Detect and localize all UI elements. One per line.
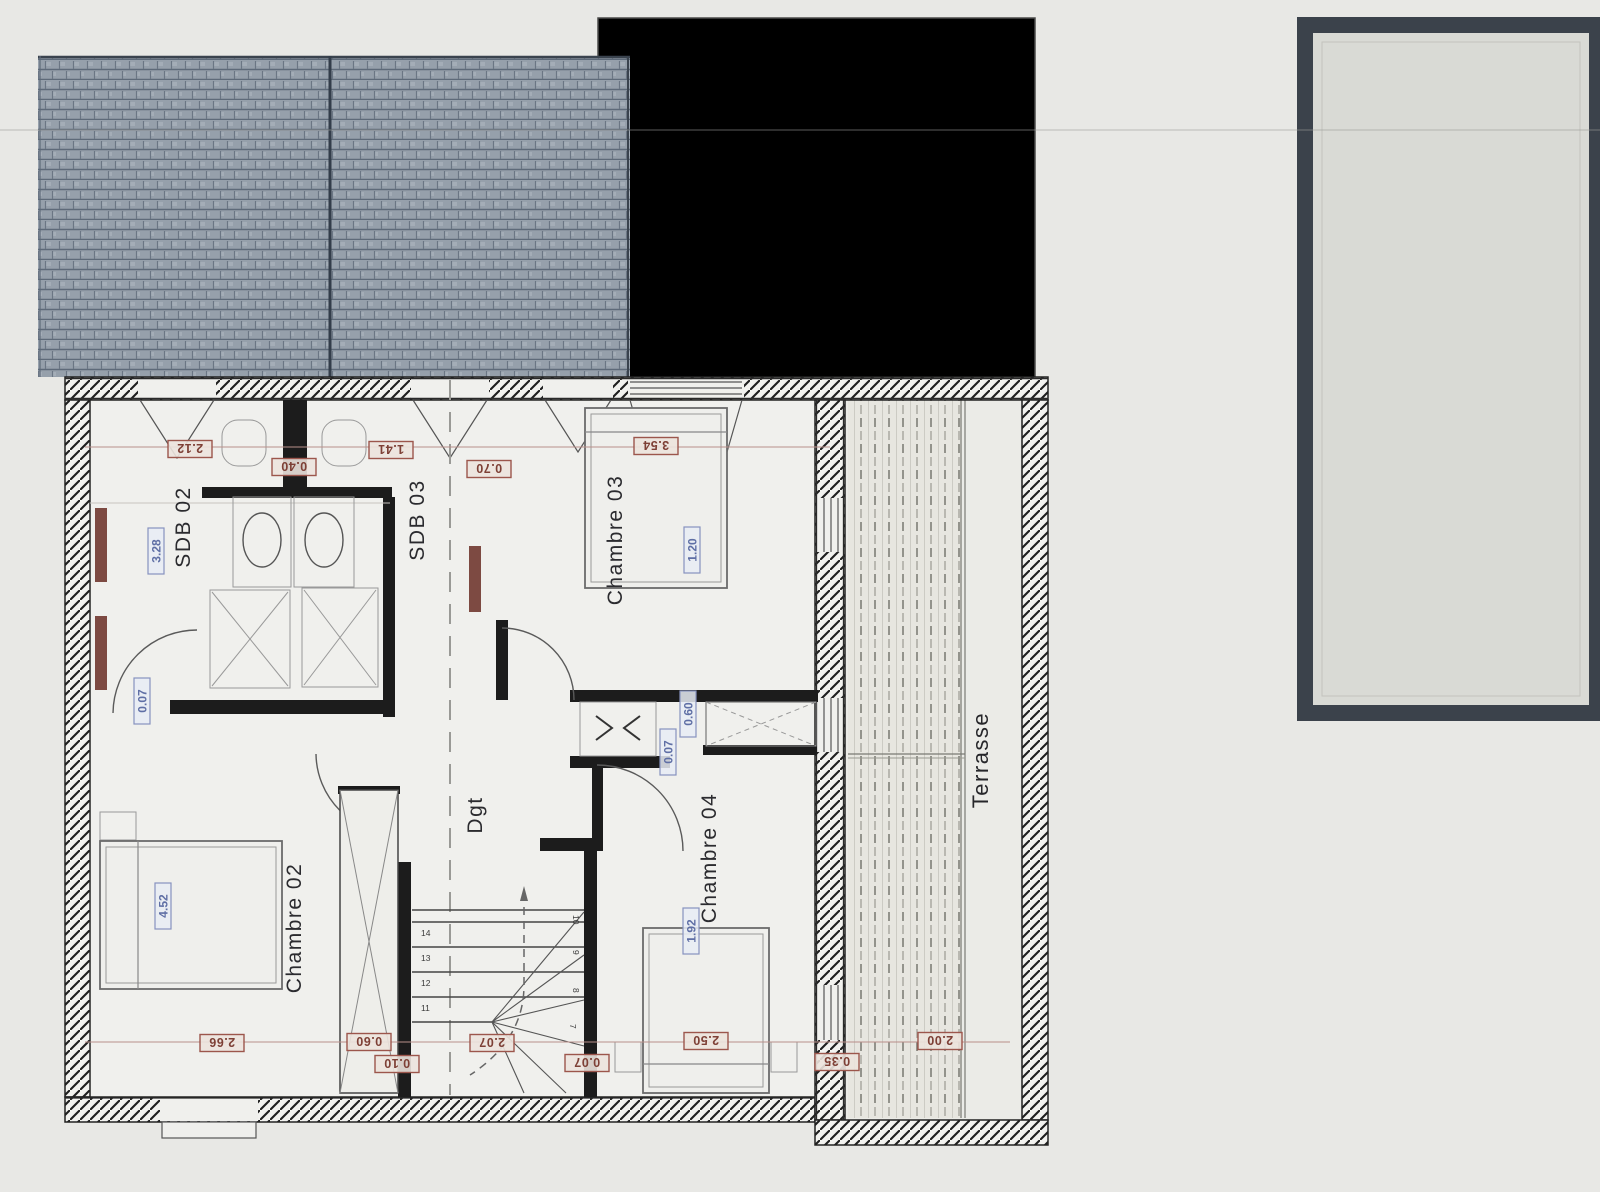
dim-label-blue: 3.28 (148, 528, 164, 574)
svg-text:0.40: 0.40 (281, 459, 307, 473)
dim-label: 2.07 (470, 1035, 514, 1052)
stair-number: 14 (421, 928, 431, 938)
room-label-sdb03: SDB 03 (406, 479, 429, 560)
dim-label-blue: 0.07 (134, 678, 150, 724)
svg-text:0.07: 0.07 (136, 689, 150, 713)
dim-label-blue: 0.60 (680, 691, 696, 737)
svg-text:4.52: 4.52 (157, 894, 171, 918)
room-label-chambre04: Chambre 04 (698, 793, 721, 924)
dim-label: 0.60 (347, 1034, 391, 1051)
stair-number: 9 (571, 950, 581, 955)
svg-text:3.28: 3.28 (150, 539, 164, 563)
svg-text:0.35: 0.35 (824, 1054, 850, 1068)
dim-label: 1.41 (369, 442, 413, 459)
svg-text:2.12: 2.12 (177, 441, 203, 455)
radiator (469, 546, 481, 612)
floor-plan-svg: 14 13 12 11 10 9 8 7 2.12 0.40 1.41 0.70… (0, 0, 1600, 1192)
svg-text:0.07: 0.07 (662, 740, 676, 764)
terrace-bottom-wall (815, 1120, 1048, 1145)
terrace-decking (848, 400, 965, 1118)
room-label-sdb02: SDB 02 (172, 486, 195, 567)
stair-number: 10 (571, 915, 581, 925)
svg-text:1.92: 1.92 (685, 919, 699, 943)
room-label-chambre03: Chambre 03 (604, 475, 627, 606)
room-label-terrasse: Terrasse (968, 712, 993, 808)
stair-number: 7 (568, 1024, 578, 1029)
svg-text:2.07: 2.07 (479, 1035, 505, 1049)
stair-number: 12 (421, 978, 431, 988)
upper-roof-outline (598, 18, 1035, 378)
dim-label-blue: 1.20 (684, 527, 700, 573)
stair-number: 8 (571, 988, 581, 993)
floor-plan: 14 13 12 11 10 9 8 7 2.12 0.40 1.41 0.70… (65, 377, 1048, 1145)
scanned-floor-plan-page: 14 13 12 11 10 9 8 7 2.12 0.40 1.41 0.70… (0, 0, 1600, 1192)
dim-label-blue: 1.92 (683, 908, 699, 954)
door-leaf (496, 620, 508, 700)
dim-label: 0.35 (815, 1054, 859, 1071)
room-label-dgt: Dgt (464, 796, 487, 833)
dim-label: 0.10 (375, 1056, 419, 1073)
svg-text:2.00: 2.00 (927, 1033, 953, 1047)
svg-text:0.07: 0.07 (574, 1055, 600, 1069)
dark-framed-roof (1305, 25, 1597, 713)
stair-number: 13 (421, 953, 431, 963)
door-leaf (592, 762, 603, 851)
dim-label: 2.66 (200, 1035, 244, 1052)
svg-text:0.10: 0.10 (384, 1056, 410, 1070)
dim-label: 0.70 (467, 461, 511, 478)
svg-text:0.60: 0.60 (356, 1034, 382, 1048)
radiator (95, 616, 107, 690)
svg-text:0.60: 0.60 (682, 702, 696, 726)
svg-text:2.66: 2.66 (209, 1035, 235, 1049)
dim-label: 2.50 (684, 1033, 728, 1050)
svg-text:2.50: 2.50 (693, 1033, 719, 1047)
left-wall (65, 400, 90, 1097)
dim-label: 2.12 (168, 441, 212, 458)
roof-tiles-block (38, 56, 630, 377)
svg-text:1.41: 1.41 (378, 442, 404, 456)
terrace-right-wall (1022, 400, 1048, 1120)
stair-number: 11 (421, 1003, 430, 1013)
svg-text:0.70: 0.70 (476, 461, 502, 475)
radiator (95, 508, 107, 582)
svg-text:3.54: 3.54 (643, 438, 669, 452)
room-label-chambre02: Chambre 02 (283, 863, 306, 994)
dim-label: 0.40 (272, 459, 316, 476)
dim-label: 0.07 (565, 1055, 609, 1072)
dim-label-blue: 0.07 (660, 729, 676, 775)
svg-text:1.20: 1.20 (686, 538, 700, 562)
dim-label: 3.54 (634, 438, 678, 455)
bed-chambre04 (615, 928, 797, 1093)
dim-label: 2.00 (918, 1033, 962, 1050)
dim-label-blue: 4.52 (155, 883, 171, 929)
